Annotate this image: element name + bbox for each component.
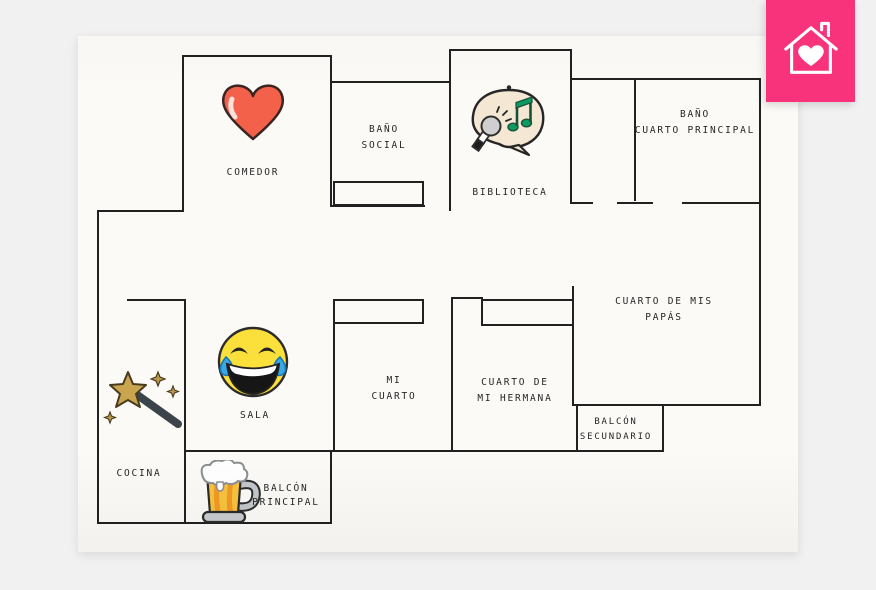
karaoke-icon — [463, 84, 551, 162]
door-rect-mi-cuarto — [334, 300, 423, 323]
house-heart-icon — [780, 20, 842, 82]
screenshot-stage: COMEDOR BAÑO SOCIAL BIBLIOTECA BAÑO CUAR… — [0, 0, 876, 590]
room-label-cuarto-de-mis-papas: CUARTO DE MIS PAPÁS — [615, 294, 713, 326]
room-label-bano-cuarto-principal: BAÑO CUARTO PRINCIPAL — [635, 107, 755, 139]
room-label-biblioteca: BIBLIOTECA — [472, 185, 547, 201]
room-label-balcon-secundario: BALCÓN SECUNDARIO — [580, 415, 652, 445]
room-label-cocina: COCINA — [116, 466, 161, 482]
brand-badge — [766, 0, 855, 102]
room-label-sala: SALA — [240, 408, 270, 424]
magic-wand-icon — [102, 368, 190, 436]
heart-icon — [217, 81, 289, 145]
room-label-bano-social: BAÑO SOCIAL — [361, 122, 406, 154]
door-rect-hermana — [482, 300, 573, 325]
floor-plan-paper: COMEDOR BAÑO SOCIAL BIBLIOTECA BAÑO CUAR… — [78, 36, 798, 552]
room-label-mi-cuarto: MI CUARTO — [371, 373, 416, 405]
room-label-balcon-principal: BALCÓN PRINCIPAL — [252, 482, 320, 510]
room-label-cuarto-de-mi-hermana: CUARTO DE MI HERMANA — [477, 375, 552, 407]
door-rect-bano-social — [334, 182, 423, 205]
laughing-emoji-icon — [214, 324, 292, 402]
room-label-comedor: COMEDOR — [227, 165, 280, 181]
